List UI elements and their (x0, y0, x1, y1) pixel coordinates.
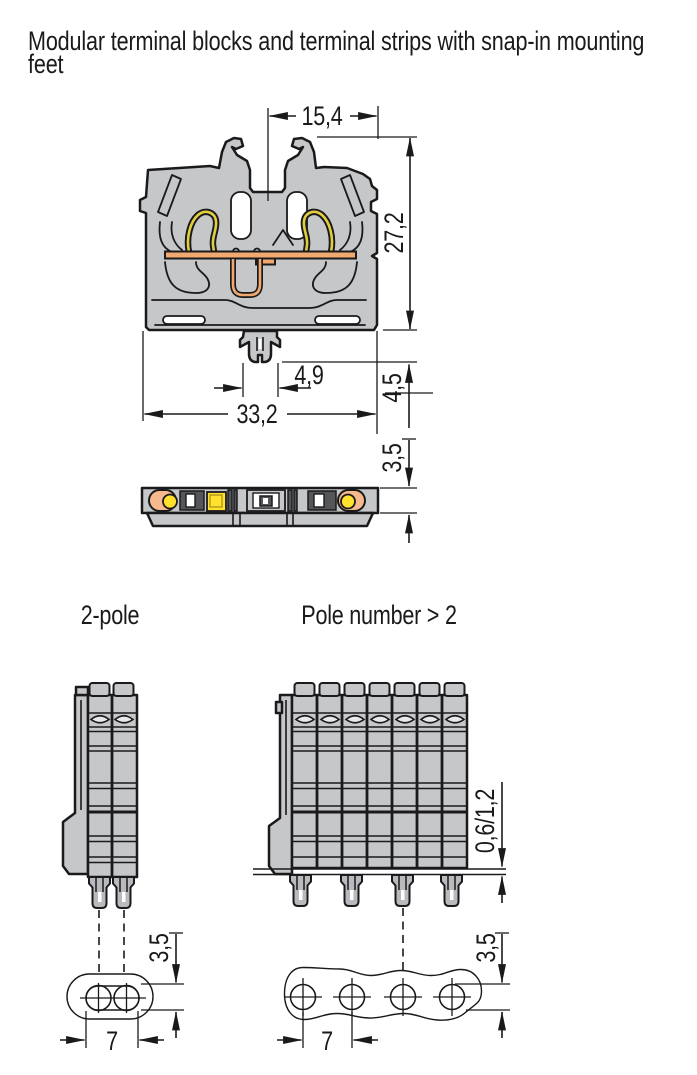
dim-label-slot-width: 3,5 (145, 933, 175, 962)
dim-base-height: 3,5 (378, 439, 417, 543)
multi-pole-drawing: 0,6/1,2 3,5 7 (253, 683, 510, 1057)
terminal-block-diagram: 15,4 27,2 4,9 4,5 33,2 (0, 0, 697, 1075)
snap-in-foot (240, 331, 280, 362)
mounting-foot (113, 877, 134, 908)
technical-drawing-page: Modular terminal blocks and terminal str… (0, 0, 697, 1075)
dim-label-foot-width: 4,9 (294, 361, 323, 391)
dim-label-hole-pitch: 7 (321, 1027, 333, 1057)
center-latch (247, 490, 285, 511)
dim-label-base-height: 3,5 (378, 443, 408, 472)
dim-label-foot-height: 4,5 (378, 373, 408, 402)
dim-label-plate-thickness: 0,6/1,2 (471, 789, 501, 853)
mounting-foot (341, 875, 362, 906)
mounting-foot (290, 875, 311, 906)
mounting-foot (89, 877, 110, 908)
dim-label-block-width: 33,2 (236, 400, 277, 430)
marking-orange-right (338, 490, 365, 511)
two-pole-hole-pattern (67, 974, 153, 1019)
dim-plate-thickness: 0,6/1,2 (471, 782, 502, 903)
dim-label-top-width: 15,4 (301, 102, 342, 132)
mounting-foot (392, 875, 413, 906)
mounting-foot (441, 875, 462, 906)
front-view-drawing (140, 138, 377, 362)
marking-orange-left (149, 490, 177, 511)
dim-foot-width: 4,9 (214, 361, 324, 397)
multi-pole-hole-pattern (284, 968, 482, 1021)
end-plate-profile (269, 695, 292, 874)
dim-label-block-height: 27,2 (380, 212, 410, 253)
dim-label-slot-length: 7 (106, 1027, 118, 1057)
bottom-view-drawing (142, 488, 378, 526)
two-pole-drawing: 3,5 7 (60, 683, 184, 1057)
dim-hole-pitch: 7 (277, 1012, 378, 1057)
end-plate-profile (63, 695, 88, 874)
label-two-pole: 2-pole (81, 601, 140, 631)
label-multi-pole: Pole number > 2 (301, 601, 456, 631)
marking-yellow-button (207, 492, 226, 511)
dim-label-hole-diameter: 3,5 (472, 933, 502, 962)
